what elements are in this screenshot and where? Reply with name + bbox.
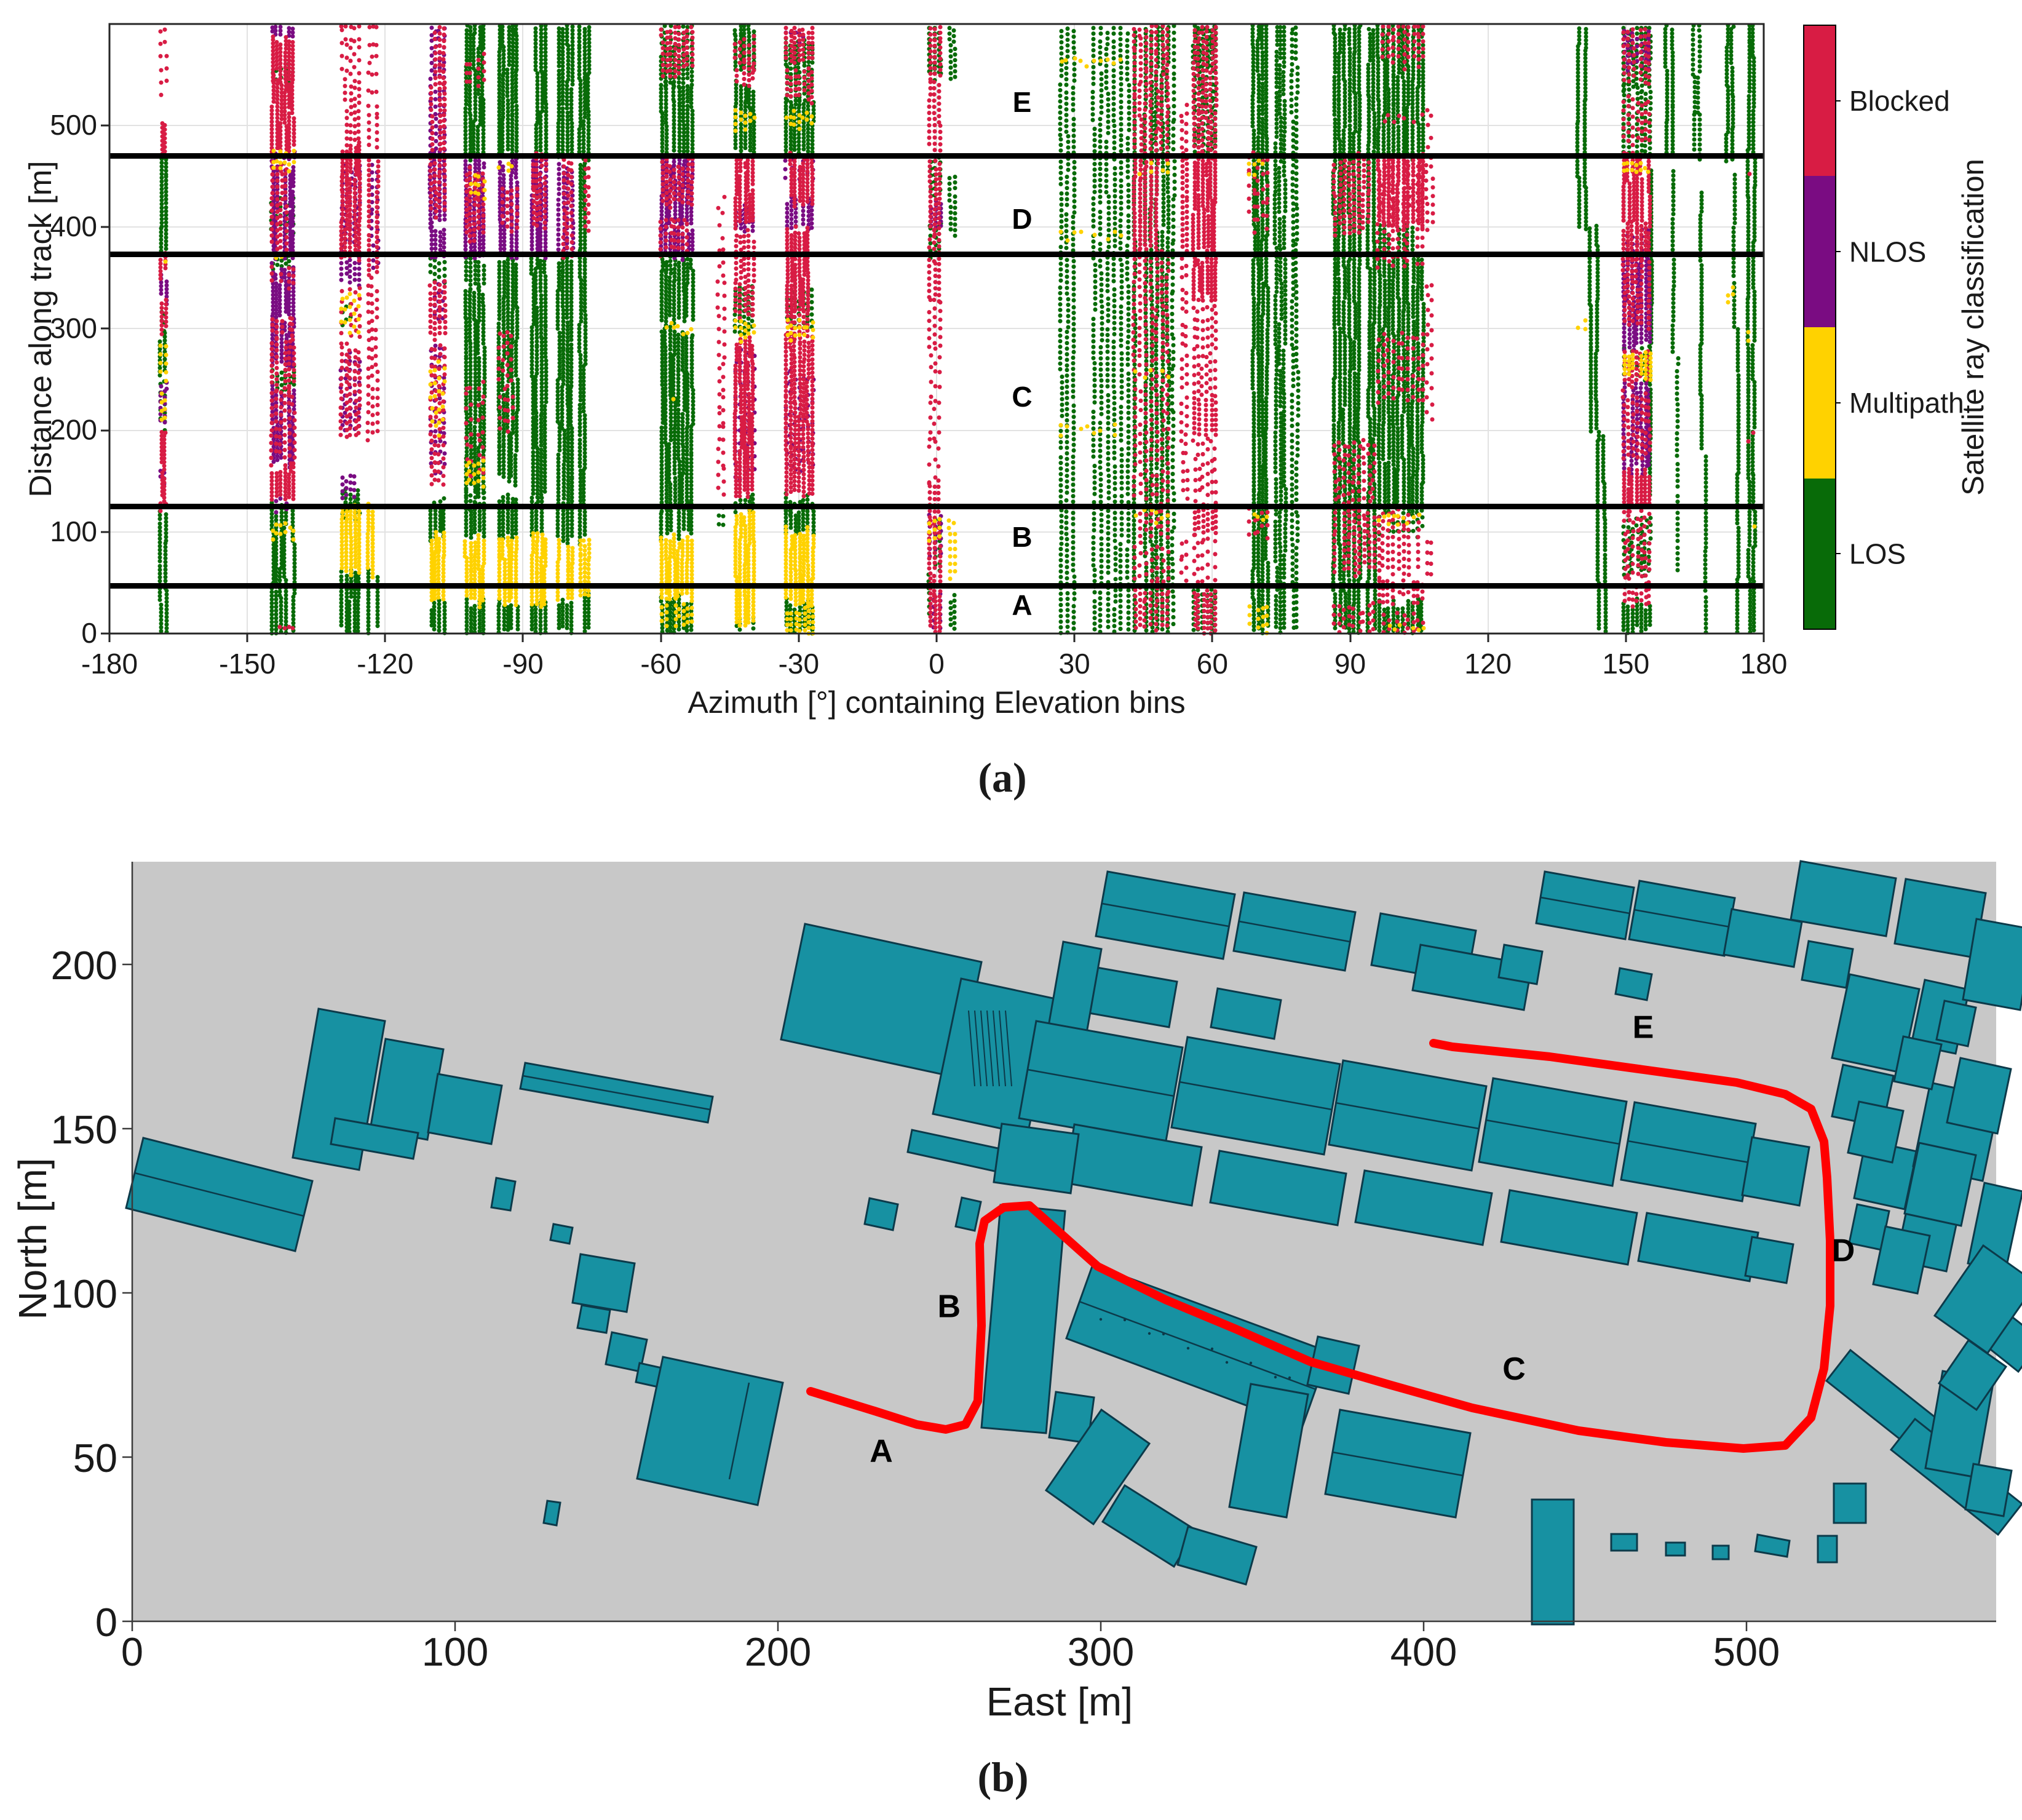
svg-text:LOS: LOS [1849,538,1906,570]
svg-text:90: 90 [1334,648,1366,680]
svg-text:300: 300 [1068,1629,1134,1674]
svg-text:Blocked: Blocked [1849,85,1950,117]
svg-text:0: 0 [81,617,97,649]
svg-text:A: A [1012,589,1032,621]
svg-text:120: 120 [1464,648,1512,680]
svg-text:200: 200 [51,943,117,988]
svg-text:200: 200 [745,1629,811,1674]
svg-text:(b): (b) [977,1754,1028,1800]
svg-text:100: 100 [51,1271,117,1316]
svg-text:North [m]: North [m] [10,1158,55,1319]
svg-text:-60: -60 [640,648,681,680]
svg-text:(a): (a) [978,754,1026,801]
svg-text:D: D [1832,1233,1855,1269]
svg-text:500: 500 [50,109,97,141]
svg-text:-180: -180 [81,648,138,680]
svg-text:Distance along track [m]: Distance along track [m] [23,161,58,497]
svg-text:100: 100 [50,515,97,547]
svg-text:50: 50 [73,1436,117,1480]
svg-text:-90: -90 [502,648,543,680]
svg-text:E: E [1633,1009,1654,1045]
svg-text:100: 100 [422,1629,488,1674]
svg-text:60: 60 [1197,648,1228,680]
svg-text:Satellite ray classification: Satellite ray classification [1957,159,1990,495]
svg-text:B: B [937,1289,961,1324]
svg-text:Multipath: Multipath [1849,387,1964,419]
svg-text:B: B [1012,521,1032,553]
svg-text:-150: -150 [219,648,276,680]
svg-text:150: 150 [51,1107,117,1152]
svg-text:150: 150 [1602,648,1649,680]
svg-text:NLOS: NLOS [1849,236,1926,268]
svg-text:30: 30 [1059,648,1090,680]
svg-text:0: 0 [929,648,945,680]
svg-text:-120: -120 [357,648,413,680]
svg-text:400: 400 [1390,1629,1457,1674]
svg-text:E: E [1013,86,1032,118]
svg-text:D: D [1012,203,1032,235]
svg-text:C: C [1502,1351,1526,1387]
svg-text:C: C [1012,381,1032,413]
svg-text:East [m]: East [m] [986,1679,1133,1724]
svg-text:0: 0 [121,1629,143,1674]
svg-text:500: 500 [1713,1629,1780,1674]
svg-text:0: 0 [95,1600,117,1645]
svg-text:-30: -30 [779,648,819,680]
svg-text:A: A [870,1433,893,1469]
svg-text:180: 180 [1740,648,1788,680]
svg-text:Azimuth [°] containing Elevati: Azimuth [°] containing Elevation bins [688,685,1185,720]
